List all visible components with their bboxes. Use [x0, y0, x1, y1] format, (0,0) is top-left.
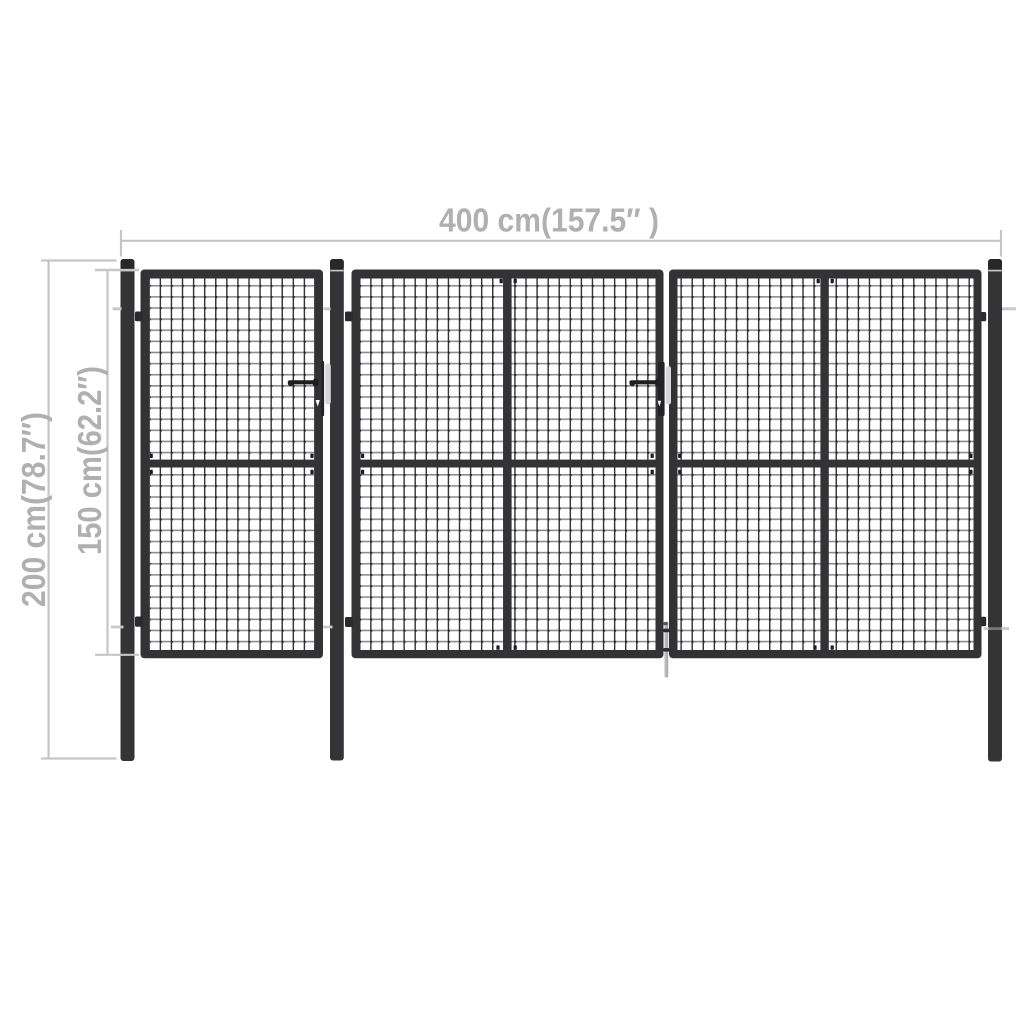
svg-text:200 cm(78.7″): 200 cm(78.7″) [15, 412, 52, 607]
svg-text:150 cm(62.2″): 150 cm(62.2″) [71, 366, 108, 555]
svg-text:400 cm(157.5″ ): 400 cm(157.5″ ) [439, 202, 659, 239]
